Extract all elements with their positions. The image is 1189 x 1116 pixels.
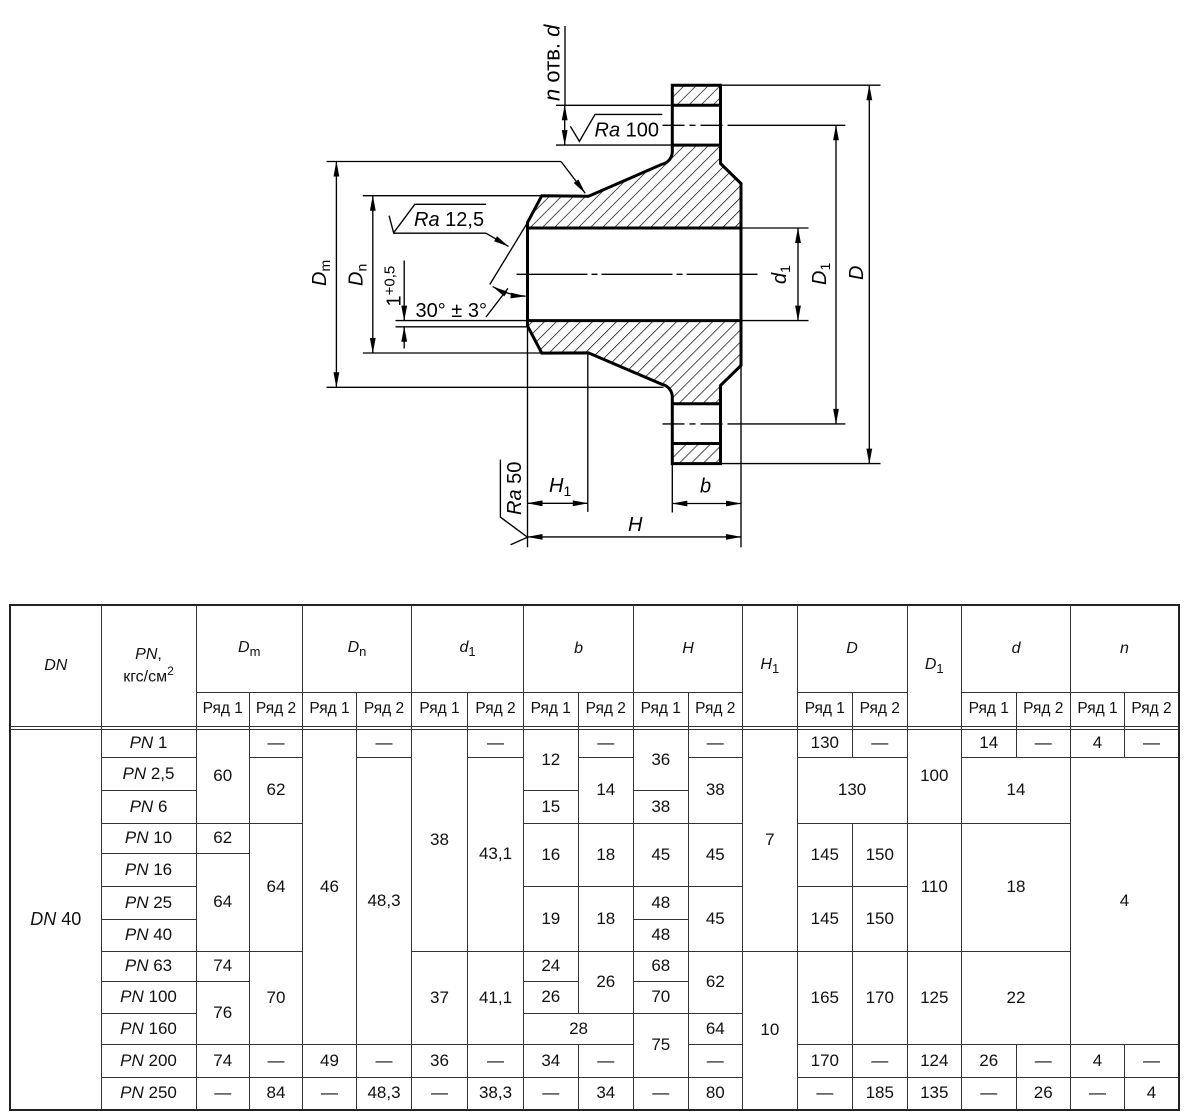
svg-text:b: b <box>700 476 711 498</box>
svg-text:Dn: Dn <box>346 264 370 286</box>
svg-text:H1: H1 <box>549 475 571 499</box>
svg-text:D1: D1 <box>809 263 833 285</box>
svg-text:Ra 100: Ra 100 <box>595 119 660 141</box>
svg-text:d1: d1 <box>769 265 793 284</box>
svg-text:H: H <box>628 514 643 536</box>
svg-text:n отв. d: n отв. d <box>540 24 565 101</box>
svg-text:Ra 12,5: Ra 12,5 <box>414 209 484 231</box>
svg-text:Dm: Dm <box>309 260 333 286</box>
svg-text:30° ± 3°: 30° ± 3° <box>416 300 487 322</box>
svg-text:1+0,5: 1+0,5 <box>382 266 406 307</box>
svg-text:D: D <box>846 266 868 280</box>
svg-text:Ra 50: Ra 50 <box>504 462 526 515</box>
